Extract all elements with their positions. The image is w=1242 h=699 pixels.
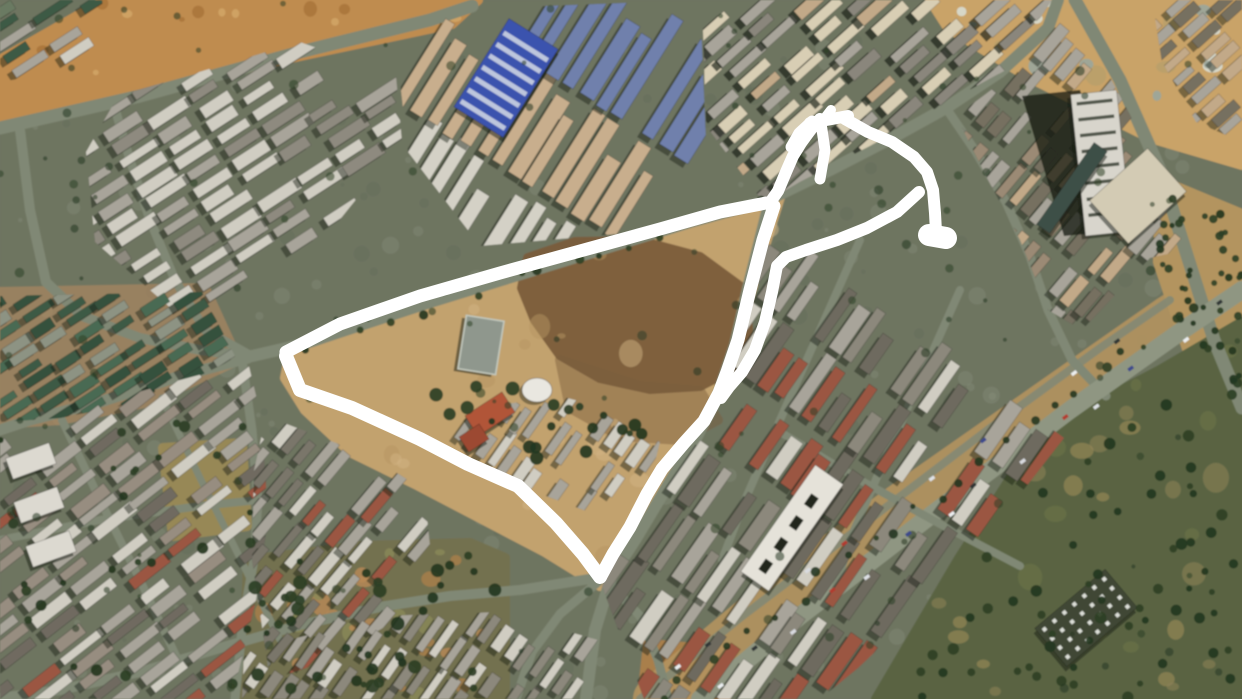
tree — [548, 399, 560, 411]
tree — [693, 367, 701, 375]
ground-mottle — [1096, 493, 1109, 502]
ground-texture-blob — [1118, 273, 1133, 288]
tree — [1049, 630, 1056, 637]
screenshot-root: Satellite aerial photo of a dense city w… — [0, 0, 1242, 699]
tree — [42, 424, 48, 430]
ground-texture-blob — [366, 182, 381, 197]
tree — [1194, 613, 1205, 624]
tree — [88, 525, 95, 532]
tree — [945, 264, 954, 273]
ground-mottle — [619, 340, 643, 367]
tree — [373, 577, 382, 586]
ground-texture-blob — [312, 280, 322, 290]
tree — [1183, 430, 1195, 442]
sports-court-group — [454, 315, 504, 378]
tree — [488, 583, 501, 596]
tree — [948, 643, 960, 655]
tree — [55, 14, 64, 23]
white-round-tank — [522, 378, 552, 402]
tree — [265, 641, 274, 650]
ground-texture-blob — [354, 246, 370, 262]
ground-texture-blob — [643, 94, 652, 103]
roadside-tree — [626, 245, 632, 251]
tree — [461, 401, 474, 414]
tree — [1150, 202, 1155, 207]
tree — [718, 452, 724, 458]
tree — [227, 683, 236, 692]
roadside-tree — [811, 567, 821, 577]
tree — [93, 195, 98, 200]
tree — [341, 588, 346, 593]
tree — [117, 428, 126, 437]
tree — [105, 163, 113, 171]
tree — [526, 103, 534, 111]
tree — [320, 674, 326, 680]
tree — [523, 440, 536, 453]
tree — [69, 180, 78, 189]
roadside-tree — [419, 310, 428, 319]
tree — [1190, 490, 1197, 497]
tree — [259, 600, 266, 607]
tree — [1176, 538, 1188, 550]
roadside-tree — [910, 504, 915, 509]
roadside-tree — [1052, 402, 1059, 409]
ground-mottle — [990, 687, 1001, 696]
tree — [110, 466, 116, 472]
tree — [1166, 197, 1172, 203]
tree — [1094, 178, 1102, 186]
ground-mottle — [1123, 641, 1139, 652]
ground-texture-blob — [865, 162, 877, 174]
ground-mottle — [1200, 411, 1217, 431]
tree — [229, 587, 235, 593]
tree — [903, 118, 907, 122]
tree — [600, 412, 608, 420]
ground-texture-blob — [256, 413, 261, 418]
tree — [1102, 663, 1109, 670]
tree — [1037, 611, 1045, 619]
ground-texture-blob — [861, 270, 866, 275]
tree — [1075, 66, 1085, 76]
tree — [1218, 270, 1224, 276]
tree — [63, 108, 72, 117]
tree — [297, 558, 303, 564]
tree — [1031, 585, 1043, 597]
tree — [281, 215, 288, 222]
ground-mottle — [1044, 506, 1066, 522]
tree — [1222, 230, 1228, 236]
tree — [119, 492, 128, 501]
tree — [877, 199, 886, 208]
tree — [70, 225, 78, 233]
tree — [1225, 674, 1235, 684]
tree — [1201, 568, 1208, 575]
tree — [70, 663, 77, 670]
tree — [901, 539, 907, 545]
tree — [946, 317, 952, 323]
tree — [1186, 538, 1195, 547]
tree — [1158, 659, 1168, 669]
tree — [264, 630, 270, 636]
ground-mottle — [218, 8, 225, 16]
ground-texture-blob — [705, 94, 717, 106]
tree — [974, 76, 979, 81]
tree — [464, 552, 472, 560]
tree — [384, 631, 391, 638]
roadside-tree — [845, 552, 852, 559]
tree — [60, 580, 66, 586]
tree — [1160, 262, 1166, 268]
tree — [954, 171, 963, 180]
tree — [286, 616, 297, 627]
tree — [1147, 489, 1157, 499]
tree — [91, 664, 103, 676]
tree — [1186, 272, 1192, 278]
tree — [24, 616, 32, 624]
ground-texture-blob — [63, 120, 71, 128]
tree — [1131, 564, 1135, 568]
tree — [1229, 559, 1238, 568]
ground-mottle — [1203, 660, 1216, 669]
tree — [356, 646, 362, 652]
tree — [1070, 664, 1077, 671]
tree — [492, 399, 496, 403]
roadside-tree — [802, 597, 811, 606]
tree — [943, 207, 950, 214]
tree — [489, 418, 495, 424]
tree — [7, 507, 16, 516]
tree — [939, 83, 946, 90]
tree — [1187, 573, 1193, 579]
tree — [691, 249, 697, 255]
tree — [1093, 569, 1103, 579]
tree — [135, 559, 142, 566]
tree — [342, 644, 350, 652]
tree — [248, 581, 262, 595]
tree — [824, 204, 832, 212]
tree — [1081, 92, 1088, 99]
tree — [197, 542, 208, 553]
ground-texture-blob — [989, 393, 996, 400]
ground-mottle — [1167, 683, 1179, 691]
tree — [1201, 305, 1207, 311]
tree — [1171, 605, 1182, 616]
tree — [247, 509, 253, 515]
tree — [21, 586, 31, 596]
roadside-tree — [723, 642, 730, 649]
tree — [1142, 617, 1149, 624]
tree — [1038, 488, 1048, 498]
tree — [1153, 584, 1163, 594]
tree — [927, 650, 937, 660]
tree — [1169, 545, 1177, 553]
tree — [1146, 266, 1156, 276]
ground-mottle — [519, 339, 530, 349]
tree — [506, 382, 520, 396]
tree — [398, 658, 406, 666]
tree — [15, 268, 25, 278]
tree — [367, 663, 379, 675]
ground-mottle — [93, 70, 99, 75]
tree — [428, 308, 436, 316]
ground-mottle — [953, 616, 967, 628]
tree — [8, 519, 18, 529]
ground-mottle — [1119, 406, 1133, 421]
sports-court — [458, 315, 504, 374]
tree — [295, 595, 305, 605]
tree — [1184, 297, 1191, 304]
tree — [120, 670, 131, 681]
annotation-stroke-knot-tail — [820, 123, 825, 179]
tree — [1185, 61, 1192, 68]
roadside-tree — [1117, 348, 1125, 356]
ground-texture-blob — [812, 219, 824, 231]
roadside-tree — [357, 327, 364, 334]
tree — [362, 569, 371, 578]
tree — [967, 668, 975, 676]
tree — [72, 625, 79, 632]
tree — [437, 582, 444, 589]
ground-texture-blob — [261, 408, 268, 415]
tree — [1187, 268, 1193, 274]
tree — [994, 499, 1003, 508]
tree — [739, 431, 744, 436]
tree — [1014, 667, 1022, 675]
tree — [1164, 265, 1172, 273]
tree — [476, 388, 486, 398]
tree — [289, 80, 299, 90]
roadside-tree — [710, 655, 719, 664]
tree — [1186, 462, 1197, 473]
ground-texture-blob — [968, 287, 985, 304]
tree — [983, 298, 987, 302]
roadside-tree — [954, 479, 962, 487]
tree — [429, 388, 443, 402]
tree — [293, 576, 307, 590]
tree — [983, 603, 994, 614]
tree — [1229, 375, 1237, 383]
ground-mottle — [304, 1, 317, 17]
tree — [90, 369, 99, 378]
tree — [1097, 374, 1104, 381]
ground-texture-blob — [889, 629, 905, 645]
tree — [361, 682, 367, 688]
tree — [726, 43, 731, 48]
tree — [564, 405, 574, 415]
tree — [580, 445, 593, 458]
tree — [711, 524, 721, 534]
tree — [1070, 632, 1075, 637]
tree — [137, 594, 141, 598]
tree — [1227, 390, 1237, 400]
tree — [446, 61, 455, 70]
tree — [1069, 680, 1078, 689]
tree — [17, 417, 24, 424]
roadside-tree — [1070, 391, 1077, 398]
tree — [1219, 246, 1227, 254]
tree — [627, 430, 633, 436]
tree — [875, 621, 880, 626]
tree — [1136, 604, 1144, 612]
tree — [715, 441, 725, 451]
tree — [1229, 347, 1237, 355]
tree — [1027, 130, 1031, 134]
tree — [1095, 612, 1107, 624]
annotation-stroke-loop-end-blob — [929, 235, 946, 238]
ground-mottle — [331, 18, 339, 26]
ground-texture-blob — [413, 226, 423, 236]
tree — [824, 48, 829, 53]
roadside-tree — [874, 535, 879, 540]
ground-texture-blob — [341, 183, 345, 187]
ground-texture-blob — [269, 421, 275, 427]
tree — [391, 617, 405, 631]
tree — [1086, 637, 1093, 644]
ground-mottle — [957, 7, 967, 17]
tree — [1175, 434, 1181, 440]
tree — [966, 613, 975, 622]
tree — [1160, 221, 1168, 229]
tree — [374, 677, 385, 688]
tree — [576, 403, 584, 411]
tree — [1060, 684, 1069, 693]
ground-mottle — [232, 9, 240, 18]
tree — [409, 167, 417, 175]
tree — [326, 172, 335, 181]
roadside-tree — [1189, 303, 1199, 313]
tree — [108, 566, 116, 574]
roadside-tree — [1031, 416, 1040, 425]
tree — [547, 5, 555, 13]
tree — [1104, 438, 1116, 450]
tree — [1218, 344, 1223, 349]
tree — [1098, 596, 1106, 604]
tree — [147, 558, 156, 567]
satellite-map: Satellite aerial photo of a dense city w… — [0, 0, 1242, 699]
tree — [1137, 681, 1143, 687]
roadside-tree — [1102, 362, 1112, 372]
tree — [902, 240, 911, 249]
tree — [36, 600, 47, 611]
ground-mottle — [469, 304, 480, 315]
ground-mottle — [435, 549, 445, 555]
ground-mottle — [948, 630, 969, 643]
roadside-tree — [1141, 345, 1146, 350]
tree — [281, 594, 289, 602]
tree — [731, 29, 737, 35]
tree — [155, 454, 162, 461]
tree — [775, 552, 784, 561]
tree — [78, 157, 86, 165]
tree — [364, 651, 372, 659]
tree — [445, 561, 454, 570]
ground-mottle — [977, 660, 990, 669]
tree — [174, 12, 181, 19]
tree — [1084, 458, 1091, 465]
tree — [1020, 84, 1027, 91]
tree — [190, 179, 198, 187]
tree — [1069, 541, 1077, 549]
tree — [1086, 489, 1095, 498]
tree — [718, 14, 723, 19]
ground-texture-blob — [18, 218, 22, 222]
tree — [587, 423, 598, 434]
ground-mottle — [339, 4, 350, 15]
tree — [68, 65, 75, 72]
ground-mottle — [1203, 463, 1229, 493]
tree — [1169, 223, 1174, 228]
tree — [1032, 672, 1041, 681]
ground-texture-blob — [780, 56, 787, 63]
tree — [874, 185, 883, 194]
tree — [408, 660, 421, 673]
tree — [1204, 345, 1212, 353]
tree — [830, 182, 836, 188]
ground-texture-blob — [370, 268, 378, 276]
tree — [1137, 630, 1145, 638]
tree — [1156, 240, 1164, 248]
ground-texture-blob — [1077, 339, 1086, 348]
tree — [1182, 286, 1188, 292]
ground-texture-blob — [840, 207, 854, 221]
tree — [554, 336, 560, 342]
tree — [1232, 255, 1239, 262]
tree — [1045, 641, 1056, 652]
tree — [196, 48, 201, 53]
tree — [234, 477, 242, 485]
roadside-tree — [1236, 275, 1242, 281]
tree — [79, 276, 83, 280]
tree — [383, 43, 387, 47]
ground-texture-blob — [738, 182, 743, 187]
tree — [43, 156, 47, 160]
tree — [1025, 663, 1033, 671]
tree — [1235, 338, 1241, 344]
tree — [137, 553, 141, 557]
ground-texture-blob — [405, 157, 411, 163]
ground-mottle — [1165, 481, 1181, 499]
ground-texture-blob — [382, 237, 399, 254]
tree — [982, 168, 990, 176]
tree — [467, 321, 473, 327]
tree — [1209, 589, 1215, 595]
tree — [431, 564, 444, 577]
tree — [1097, 168, 1106, 177]
tree — [427, 592, 438, 603]
tree — [1155, 470, 1166, 481]
tree — [848, 296, 856, 304]
ground-mottle — [1153, 91, 1162, 101]
roadside-tree — [475, 292, 483, 300]
roadside-tree — [1172, 314, 1181, 323]
tree — [1216, 210, 1225, 219]
roadside-tree — [939, 496, 947, 504]
tree — [1008, 596, 1018, 606]
tree — [245, 538, 256, 549]
tree — [470, 684, 478, 692]
ground-texture-blob — [360, 193, 368, 201]
tree — [1206, 527, 1217, 538]
tree — [1225, 274, 1233, 282]
tree — [32, 513, 41, 522]
roadside-tree — [596, 253, 602, 259]
tree — [72, 196, 80, 204]
tree — [1162, 234, 1169, 241]
tree — [274, 620, 283, 629]
tree — [251, 668, 264, 681]
tree — [1208, 648, 1218, 658]
roadside-tree — [1003, 437, 1010, 444]
